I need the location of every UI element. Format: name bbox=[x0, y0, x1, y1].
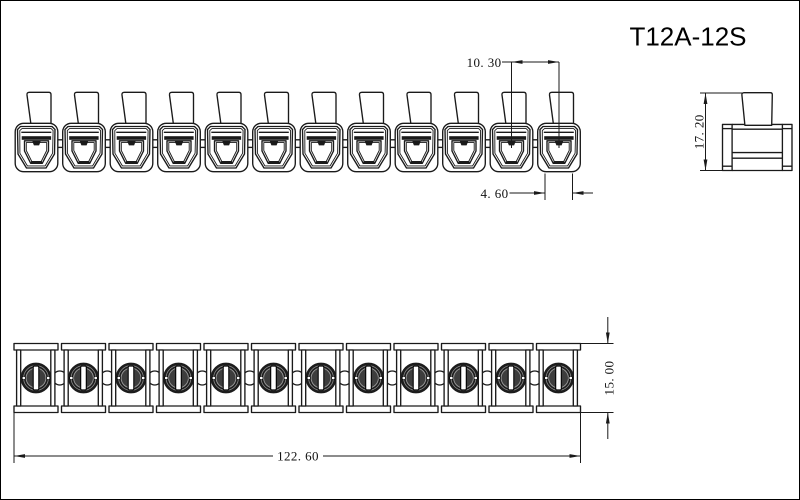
dim-opening-width: 4. 60 bbox=[481, 174, 594, 201]
side-view bbox=[723, 93, 793, 171]
side-left-cap bbox=[723, 124, 733, 170]
terminal-bottom-unit bbox=[252, 344, 296, 413]
dim-pitch-label: 10. 30 bbox=[467, 55, 502, 70]
arrowhead bbox=[14, 454, 25, 458]
dim-height-label: 17. 20 bbox=[692, 114, 707, 149]
terminal-front-unit bbox=[110, 92, 153, 171]
dim-total-length-label: 122. 60 bbox=[277, 449, 319, 464]
side-tower bbox=[742, 93, 772, 126]
arrowhead bbox=[573, 191, 584, 195]
side-right-cap bbox=[782, 124, 792, 170]
arrowhead bbox=[606, 413, 610, 424]
arrowhead bbox=[548, 60, 559, 64]
terminal-bottom-unit bbox=[442, 344, 486, 413]
drawing-sheet: 10. 30 4. 60 17. 20 bbox=[0, 0, 800, 500]
arrowhead bbox=[704, 160, 708, 171]
front-view bbox=[15, 92, 580, 171]
terminal-bottom-unit bbox=[299, 344, 343, 413]
terminal-bottom-unit bbox=[347, 344, 391, 413]
terminal-front-unit bbox=[15, 92, 58, 171]
terminal-bottom-unit bbox=[14, 344, 58, 413]
terminal-bottom-unit bbox=[394, 344, 438, 413]
terminal-front-unit bbox=[395, 92, 438, 171]
part-number-title: T12A-12S bbox=[629, 22, 746, 52]
terminal-bottom-unit bbox=[204, 344, 248, 413]
bottom-view bbox=[14, 344, 581, 413]
terminal-bottom-unit bbox=[537, 344, 581, 413]
arrowhead bbox=[534, 191, 545, 195]
arrowhead bbox=[606, 333, 610, 344]
terminal-front-unit bbox=[348, 92, 391, 171]
terminal-front-unit bbox=[205, 92, 248, 171]
terminal-bottom-unit bbox=[157, 344, 201, 413]
terminal-bottom-unit bbox=[62, 344, 106, 413]
dim-opening-label: 4. 60 bbox=[481, 186, 509, 201]
terminal-front-unit bbox=[443, 92, 486, 171]
dim-depth: 15. 00 bbox=[581, 317, 617, 439]
dim-total-length: 122. 60 bbox=[14, 412, 581, 464]
arrowhead bbox=[704, 93, 708, 104]
terminal-front-unit bbox=[63, 92, 106, 171]
terminal-bottom-unit bbox=[489, 344, 533, 413]
arrowhead bbox=[570, 454, 581, 458]
terminal-front-unit bbox=[253, 92, 296, 171]
arrowhead bbox=[512, 60, 523, 64]
technical-drawing: 10. 30 4. 60 17. 20 bbox=[1, 1, 800, 500]
terminal-front-unit bbox=[158, 92, 201, 171]
terminal-front-unit bbox=[300, 92, 343, 171]
terminal-bottom-unit bbox=[109, 344, 153, 413]
dim-depth-label: 15. 00 bbox=[602, 361, 617, 396]
